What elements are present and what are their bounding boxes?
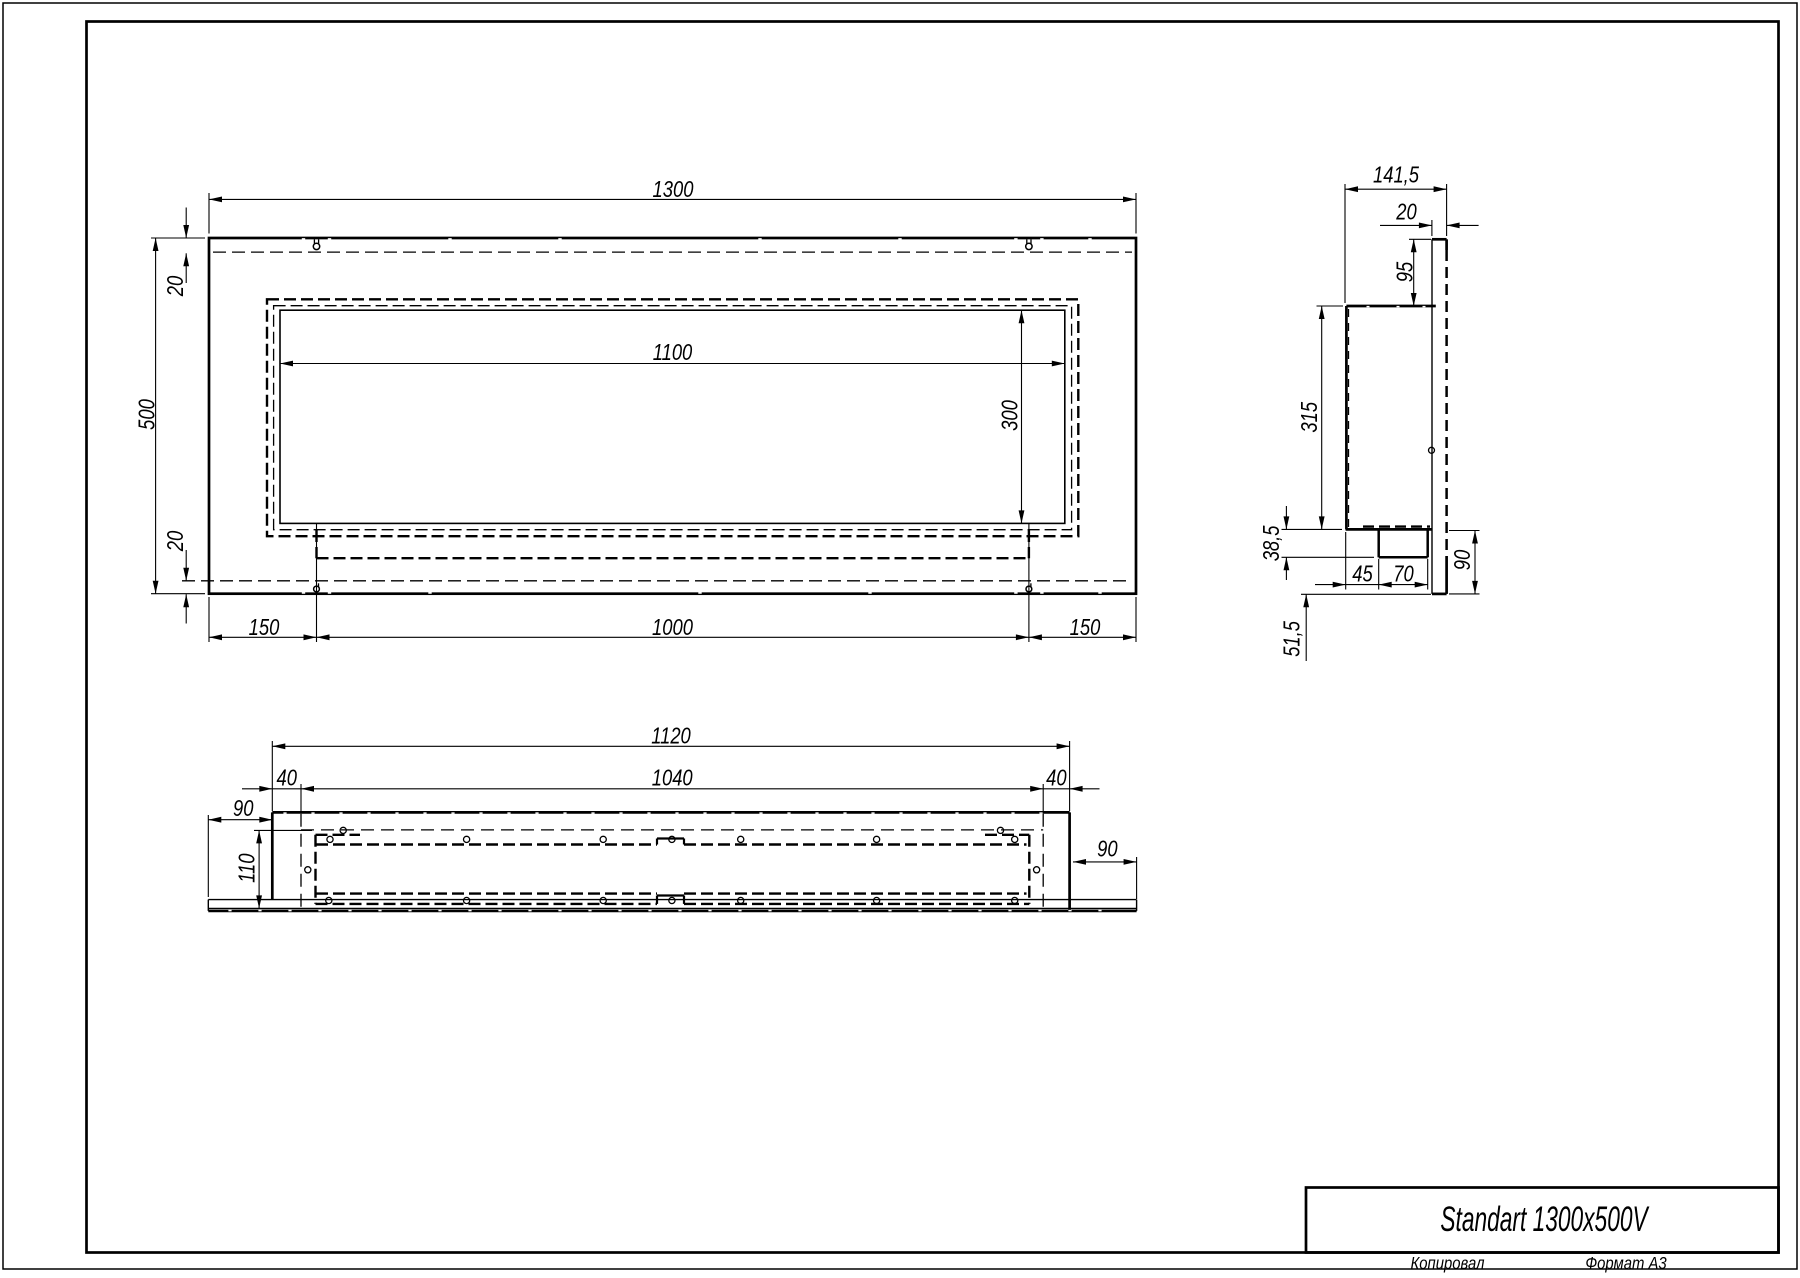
svg-text:40: 40	[1046, 766, 1067, 791]
svg-text:141,5: 141,5	[1373, 163, 1419, 188]
svg-text:90: 90	[1450, 549, 1475, 570]
svg-text:500: 500	[134, 399, 159, 430]
svg-text:51,5: 51,5	[1280, 621, 1305, 657]
svg-text:110: 110	[235, 853, 260, 883]
svg-text:300: 300	[997, 400, 1022, 431]
svg-text:70: 70	[1393, 562, 1414, 587]
svg-text:90: 90	[233, 796, 254, 821]
svg-text:150: 150	[249, 615, 280, 640]
svg-text:Копировал: Копировал	[1411, 1254, 1485, 1273]
svg-text:1300: 1300	[653, 177, 694, 202]
svg-text:38,5: 38,5	[1259, 525, 1284, 561]
svg-text:1100: 1100	[653, 340, 693, 365]
svg-text:95: 95	[1393, 261, 1418, 282]
svg-text:Формат А3: Формат А3	[1585, 1254, 1666, 1273]
svg-text:20: 20	[1395, 200, 1417, 225]
svg-text:20: 20	[163, 275, 188, 297]
svg-text:40: 40	[276, 766, 297, 791]
svg-text:1040: 1040	[652, 766, 693, 791]
svg-text:20: 20	[163, 530, 188, 552]
svg-text:1000: 1000	[652, 615, 693, 640]
svg-text:Standart 1300x500V: Standart 1300x500V	[1440, 1200, 1649, 1239]
svg-text:150: 150	[1070, 615, 1101, 640]
svg-text:1120: 1120	[651, 723, 691, 748]
svg-text:90: 90	[1097, 837, 1118, 862]
svg-text:45: 45	[1352, 562, 1373, 587]
svg-text:315: 315	[1297, 402, 1322, 433]
